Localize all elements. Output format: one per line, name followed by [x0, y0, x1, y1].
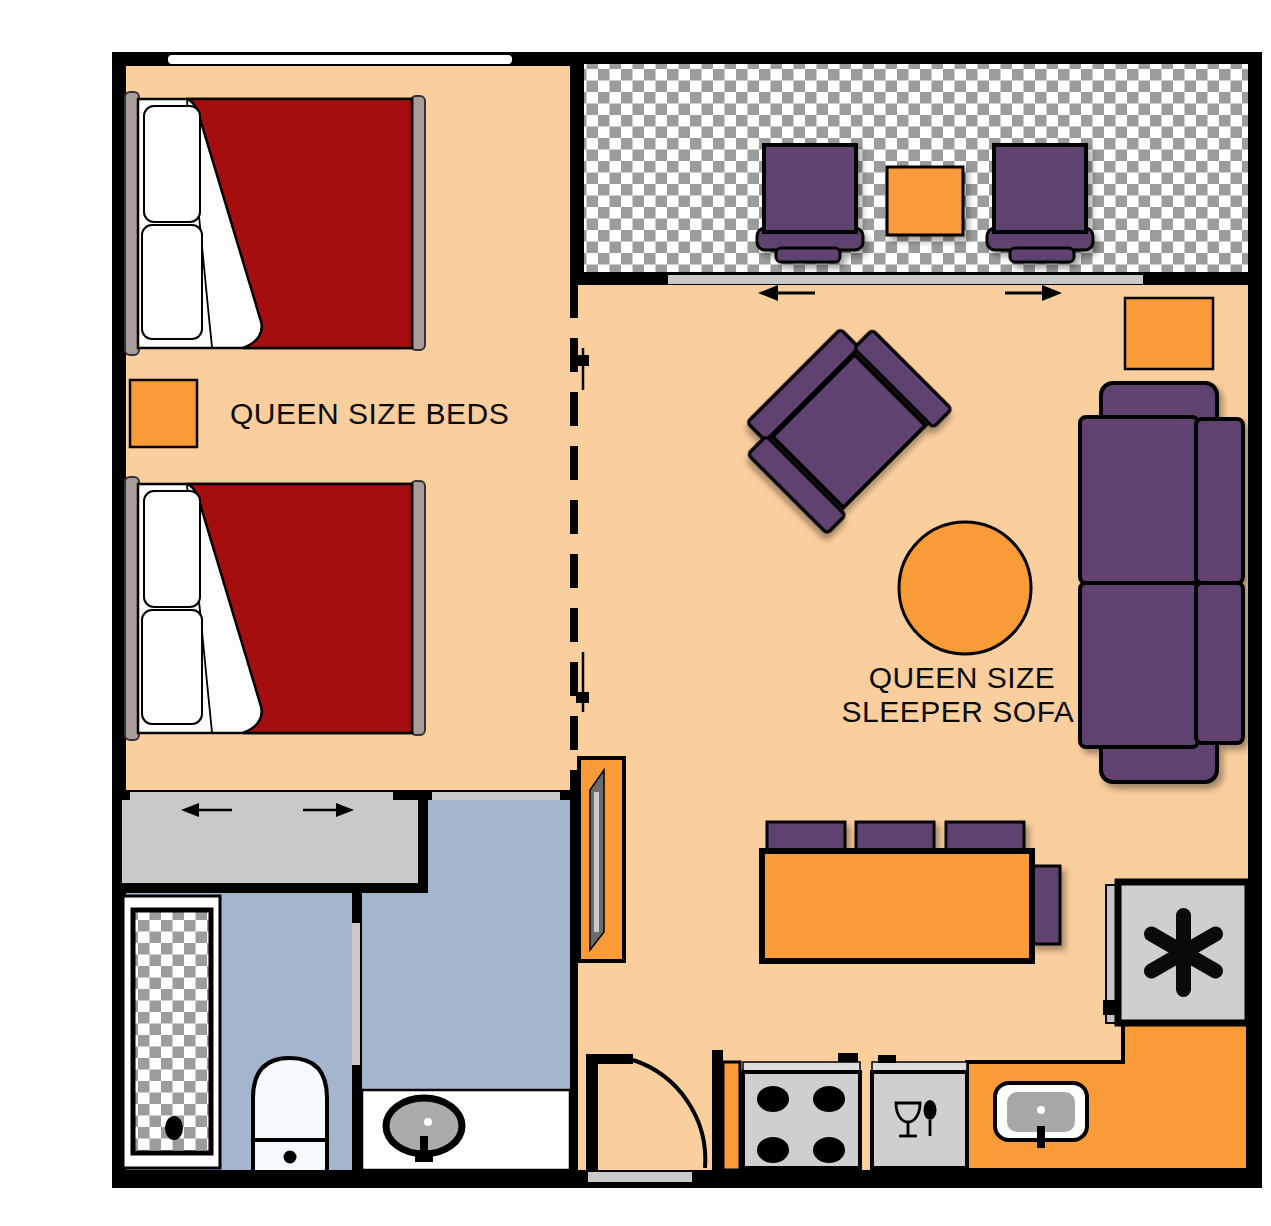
fridge-handle [1103, 1000, 1116, 1015]
kitchen-sink [995, 1083, 1087, 1148]
legend-swatch [130, 380, 197, 447]
kitchen-wall-stub [712, 1050, 723, 1172]
sofa-side-table [1125, 298, 1213, 369]
sofa-back [1196, 583, 1243, 743]
pillow [142, 225, 202, 339]
burner-icon [813, 1137, 845, 1163]
patio-chair-left [757, 145, 863, 262]
stove-handle [838, 1053, 858, 1062]
sofa-back [1196, 419, 1243, 583]
sofa-label-line1: QUEEN SIZE [869, 661, 1056, 694]
floor-plan: QUEEN SIZE BEDS [0, 0, 1271, 1226]
stove [743, 1053, 860, 1168]
dishwasher [872, 1055, 967, 1168]
closet-opening-sill [130, 792, 393, 800]
queen-bed-1 [125, 92, 425, 355]
bathtub [123, 896, 220, 1168]
pillow [144, 491, 200, 607]
patio-table [887, 167, 963, 235]
refrigerator [1103, 882, 1248, 1023]
bathroom2-door-sill [432, 792, 560, 800]
sleeper-sofa [1080, 383, 1243, 782]
closet-floor [122, 800, 418, 883]
burner-icon [757, 1086, 789, 1112]
vanity-sink [362, 1090, 570, 1170]
pillow [142, 610, 202, 724]
beds-label: QUEEN SIZE BEDS [230, 397, 509, 430]
pillow [144, 106, 200, 222]
dishwasher-handle [878, 1055, 896, 1063]
toilet-button [284, 1151, 297, 1164]
sofa-cushion [1080, 417, 1198, 583]
burner-icon [813, 1086, 845, 1112]
door-leaf [586, 1054, 598, 1172]
round-table [899, 522, 1031, 654]
bathroom-connecting-door [352, 923, 360, 1065]
dining-chair [856, 822, 934, 852]
floor-plan-page: QUEEN SIZE BEDS [0, 0, 1271, 1226]
dining-chair [767, 822, 845, 852]
faucet-icon [1037, 1126, 1045, 1148]
tv-console [579, 758, 624, 961]
dining-chair [1032, 866, 1060, 944]
entry-door-sill [588, 1172, 692, 1182]
tub-drain [165, 1116, 183, 1140]
sofa-cushion [1080, 583, 1198, 747]
balcony-sliding-door [668, 275, 1143, 284]
bedroom-window [167, 54, 513, 65]
burner-icon [757, 1137, 789, 1163]
dining-chair [946, 822, 1024, 852]
patio-chair-right [987, 145, 1093, 262]
dining-set [762, 822, 1060, 961]
kitchen-counter-strip [723, 1062, 740, 1170]
dining-table [762, 851, 1032, 961]
sofa-label-line2: SLEEPER SOFA [842, 695, 1075, 728]
queen-bed-2 [125, 477, 425, 740]
toilet [253, 1058, 327, 1172]
